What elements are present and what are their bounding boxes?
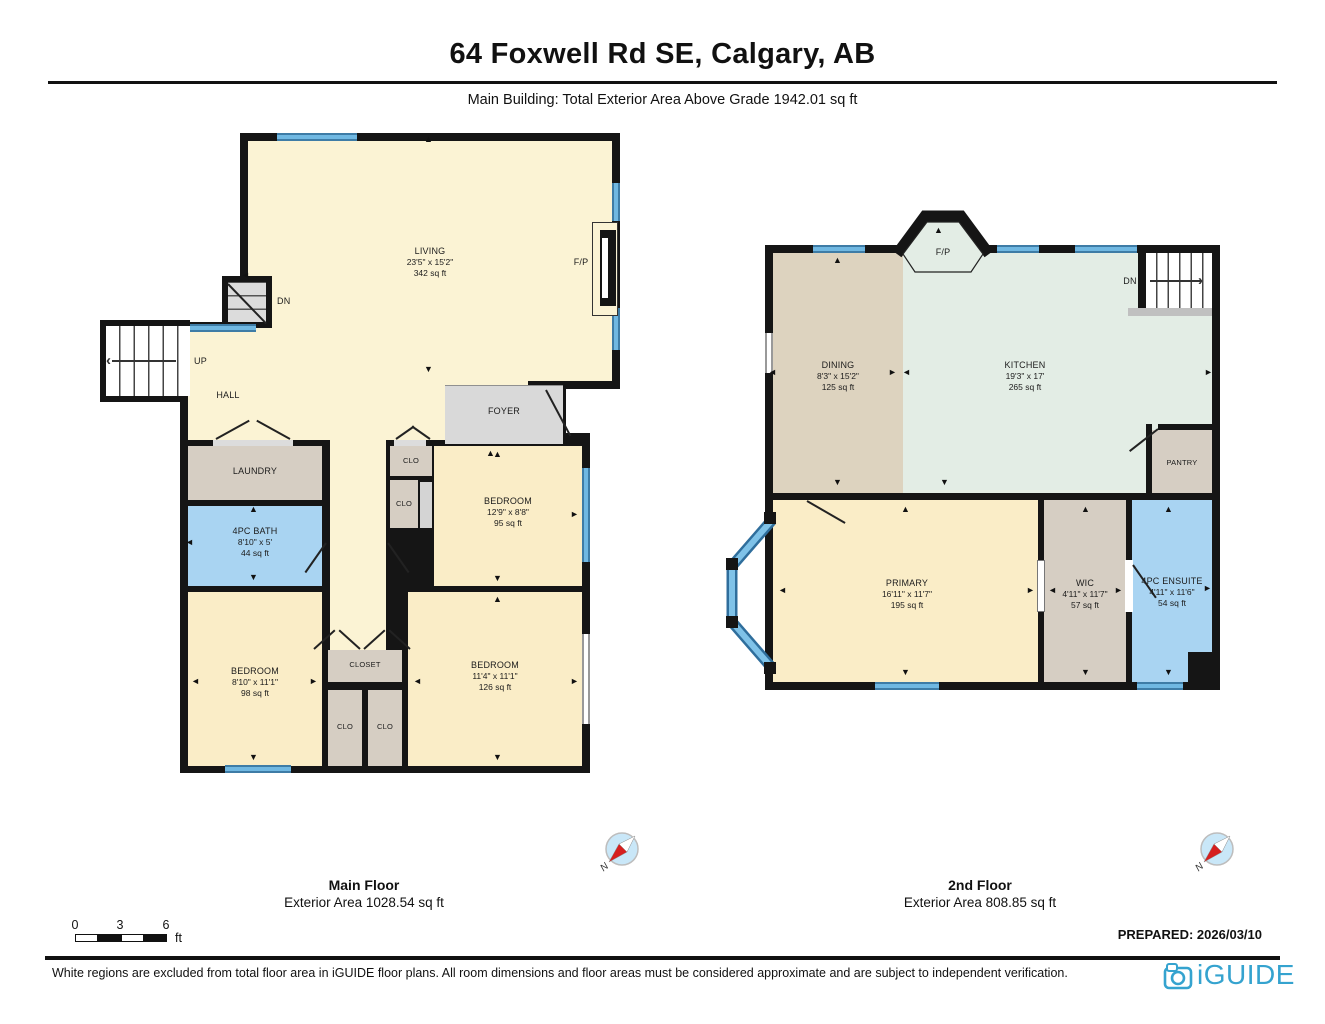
stair-arrow-shaft	[112, 360, 176, 362]
fireplace-label: F/P	[566, 257, 596, 267]
room-label-bath: 4PC BATH 8'10" x 5' 44 sq ft	[190, 526, 320, 558]
footer-disclaimer: White regions are excluded from total fl…	[52, 966, 1068, 980]
entry-door-opening	[566, 389, 590, 433]
room-label-ensuite: 4PC ENSUITE 4'11" x 11'6" 54 sq ft	[1130, 576, 1214, 608]
title-rule	[48, 81, 1277, 84]
room-label-living: LIVING 23'5" x 15'2" 342 sq ft	[360, 246, 500, 278]
scale-segment	[144, 934, 167, 942]
direction-arrow-icon: ▲	[934, 226, 943, 235]
window	[277, 133, 357, 141]
direction-arrow-icon: ►	[1204, 368, 1213, 377]
direction-arrow-icon: ▲	[1081, 505, 1090, 514]
window	[997, 245, 1039, 253]
floorplan-page: 64 Foxwell Rd SE, Calgary, AB Main Build…	[0, 0, 1325, 1024]
direction-arrow-icon: ◄	[778, 586, 787, 595]
stair-arrow-head-icon: ›	[1198, 273, 1203, 288]
stairs-dn-label: DN	[1118, 276, 1142, 286]
stair-arrow-shaft	[1150, 280, 1202, 282]
room-label-laundry: LAUNDRY	[190, 466, 320, 476]
direction-arrow-icon: ◄	[902, 368, 911, 377]
stairs-dn-label: DN	[277, 296, 307, 306]
direction-arrow-icon: ▲	[424, 135, 433, 144]
window	[612, 183, 620, 221]
direction-arrow-icon: ▼	[940, 478, 949, 487]
room-label-hall: HALL	[203, 390, 253, 400]
direction-arrow-icon: ▲	[493, 450, 502, 459]
closet-label: CLO	[388, 499, 420, 508]
scale-tick: 3	[112, 918, 128, 932]
window	[1075, 245, 1137, 253]
room-label-foyer: FOYER	[446, 406, 562, 416]
stair-arrow-head-icon: ‹	[106, 353, 111, 368]
room-label-pantry: PANTRY	[1152, 458, 1212, 467]
page-title: 64 Foxwell Rd SE, Calgary, AB	[0, 38, 1325, 71]
direction-arrow-icon: ◄	[768, 368, 777, 377]
direction-arrow-icon: ◄	[241, 271, 250, 280]
room-label-dining: DINING 8'3" x 15'2" 125 sq ft	[778, 360, 898, 392]
scale-tick: 0	[67, 918, 83, 932]
room-dim: 23'5" x 15'2"	[360, 257, 500, 267]
window-white	[582, 634, 590, 724]
direction-arrow-icon: ▼	[1164, 668, 1173, 677]
direction-arrow-icon: ►	[1026, 586, 1035, 595]
corridor-fill	[330, 440, 386, 650]
direction-arrow-icon: ▼	[249, 753, 258, 762]
direction-arrow-icon: ▲	[249, 505, 258, 514]
closet-label: CLO	[328, 722, 362, 731]
direction-arrow-icon: ▲	[493, 595, 502, 604]
window	[813, 245, 865, 253]
door-sill	[420, 482, 432, 528]
page-subtitle: Main Building: Total Exterior Area Above…	[0, 92, 1325, 108]
direction-arrow-icon: ▲	[833, 256, 842, 265]
room-label-bedroom-left: BEDROOM 8'10" x 11'1" 98 sq ft	[190, 666, 320, 698]
direction-arrow-icon: ▼	[901, 668, 910, 677]
second-floor-name: 2nd Floor	[880, 877, 1080, 893]
window	[582, 468, 590, 562]
room-label-kitchen: KITCHEN 19'3" x 17' 265 sq ft	[955, 360, 1095, 392]
room-label-bedroom-top: BEDROOM 12'9" x 8'8" 95 sq ft	[434, 496, 582, 528]
direction-arrow-icon: ▼	[493, 574, 502, 583]
direction-arrow-icon: ▼	[493, 753, 502, 762]
direction-arrow-icon: ▲	[1164, 505, 1173, 514]
iguide-logo-icon	[1163, 963, 1193, 991]
door-pocket	[1037, 560, 1045, 612]
stair-landing	[1128, 308, 1212, 316]
scale-segment	[75, 934, 98, 942]
room-label-wic: WIC 4'11" x 11'7" 57 sq ft	[1046, 578, 1124, 610]
fireplace-slot	[602, 238, 608, 298]
window	[875, 682, 939, 690]
direction-arrow-icon: ▼	[249, 573, 258, 582]
direction-arrow-icon: ▼	[833, 478, 842, 487]
iguide-logo-text: iGUIDE	[1197, 959, 1295, 991]
scale-segment	[121, 934, 144, 942]
footer-rule	[45, 956, 1280, 960]
bay-window	[720, 504, 778, 684]
wall-notch	[1188, 652, 1212, 682]
scale-unit: ft	[175, 931, 182, 945]
room-name: LIVING	[360, 246, 500, 256]
room-label-bedroom-right: BEDROOM 11'4" x 11'1" 126 sq ft	[408, 660, 582, 692]
window	[225, 765, 291, 773]
closet-label: CLO	[368, 722, 402, 731]
door-sill	[213, 440, 293, 446]
scale-segment	[98, 934, 121, 942]
window	[190, 324, 256, 332]
main-floor-name: Main Floor	[264, 877, 464, 893]
scale-tick: 6	[158, 918, 174, 932]
fireplace-label: F/P	[925, 247, 961, 257]
fireplace-bay	[893, 208, 993, 280]
direction-arrow-icon: ▼	[424, 365, 433, 374]
room-area: 342 sq ft	[360, 268, 500, 278]
window	[1137, 682, 1183, 690]
closet-label: CLO	[390, 456, 432, 465]
direction-arrow-icon: ▲	[901, 505, 910, 514]
stairs-up-label: UP	[194, 356, 224, 366]
second-floor-area: Exterior Area 808.85 sq ft	[880, 895, 1080, 910]
prepared-date: PREPARED: 2026/03/10	[1020, 927, 1262, 942]
room-label-primary: PRIMARY 16'11" x 11'7" 195 sq ft	[837, 578, 977, 610]
direction-arrow-icon: ▼	[1081, 668, 1090, 677]
door-sill	[394, 440, 426, 446]
main-floor-area: Exterior Area 1028.54 sq ft	[264, 895, 464, 910]
room-label-closet: CLOSET	[328, 660, 402, 669]
